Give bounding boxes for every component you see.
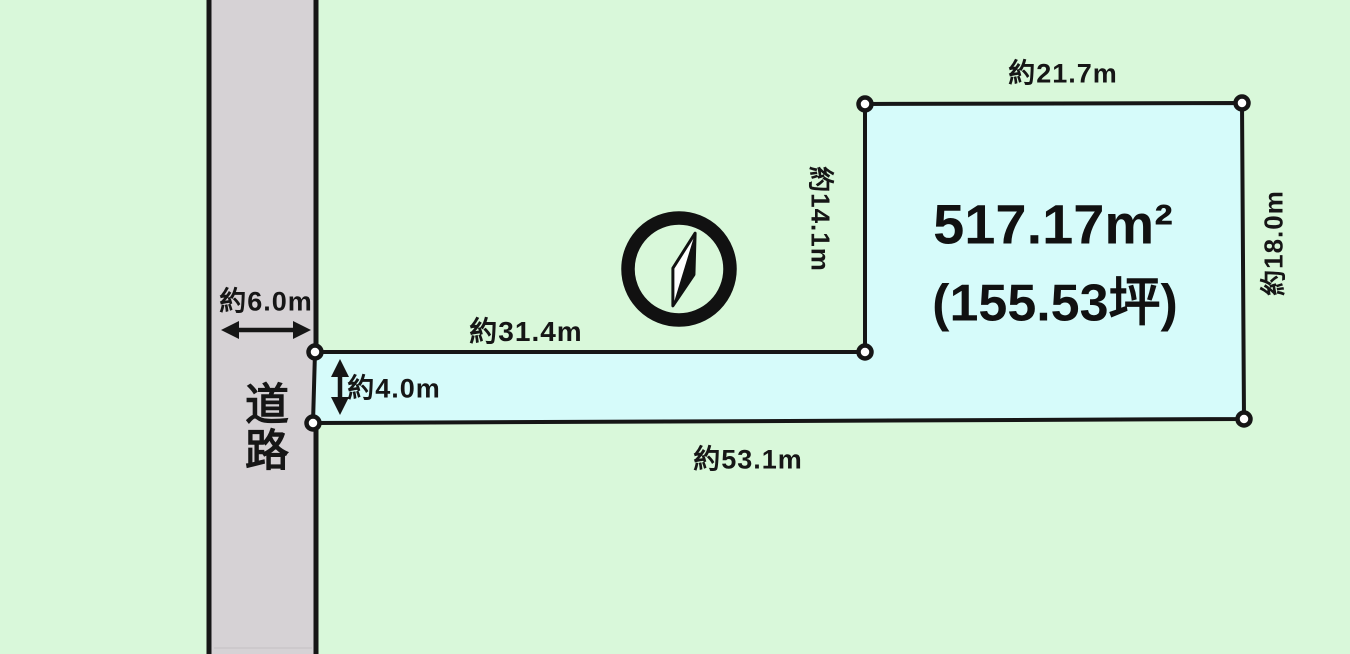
compass-icon [628,218,730,320]
land-plot-diagram: 約6.0m 道路 約31.4m 約4.0m 約53.1m 約21.7m 約14.… [0,0,1350,654]
road-width-label: 約6.0m [219,280,313,319]
main-left-dimension-label: 約14.1m [804,166,841,272]
main-right-dimension-label: 約18.0m [1254,190,1291,296]
vertex-dot [1236,97,1249,110]
vertex-dot [1238,413,1251,426]
main-top-dimension-label: 約21.7m [1008,52,1118,91]
bottom-dimension-label: 約53.1m [693,438,803,477]
vertex-dot [859,98,872,111]
vertex-dot [859,346,872,359]
parcel-area-tsubo-label: (155.53坪) [932,261,1178,336]
pole-top-dimension-label: 約31.4m [469,310,582,350]
road-name-label: 道路 [240,381,284,473]
vertex-dot [309,346,322,359]
vertex-dot [307,417,320,430]
pole-width-dimension-label: 約4.0m [347,367,441,406]
parcel-area-label: 517.17m² [933,192,1173,257]
